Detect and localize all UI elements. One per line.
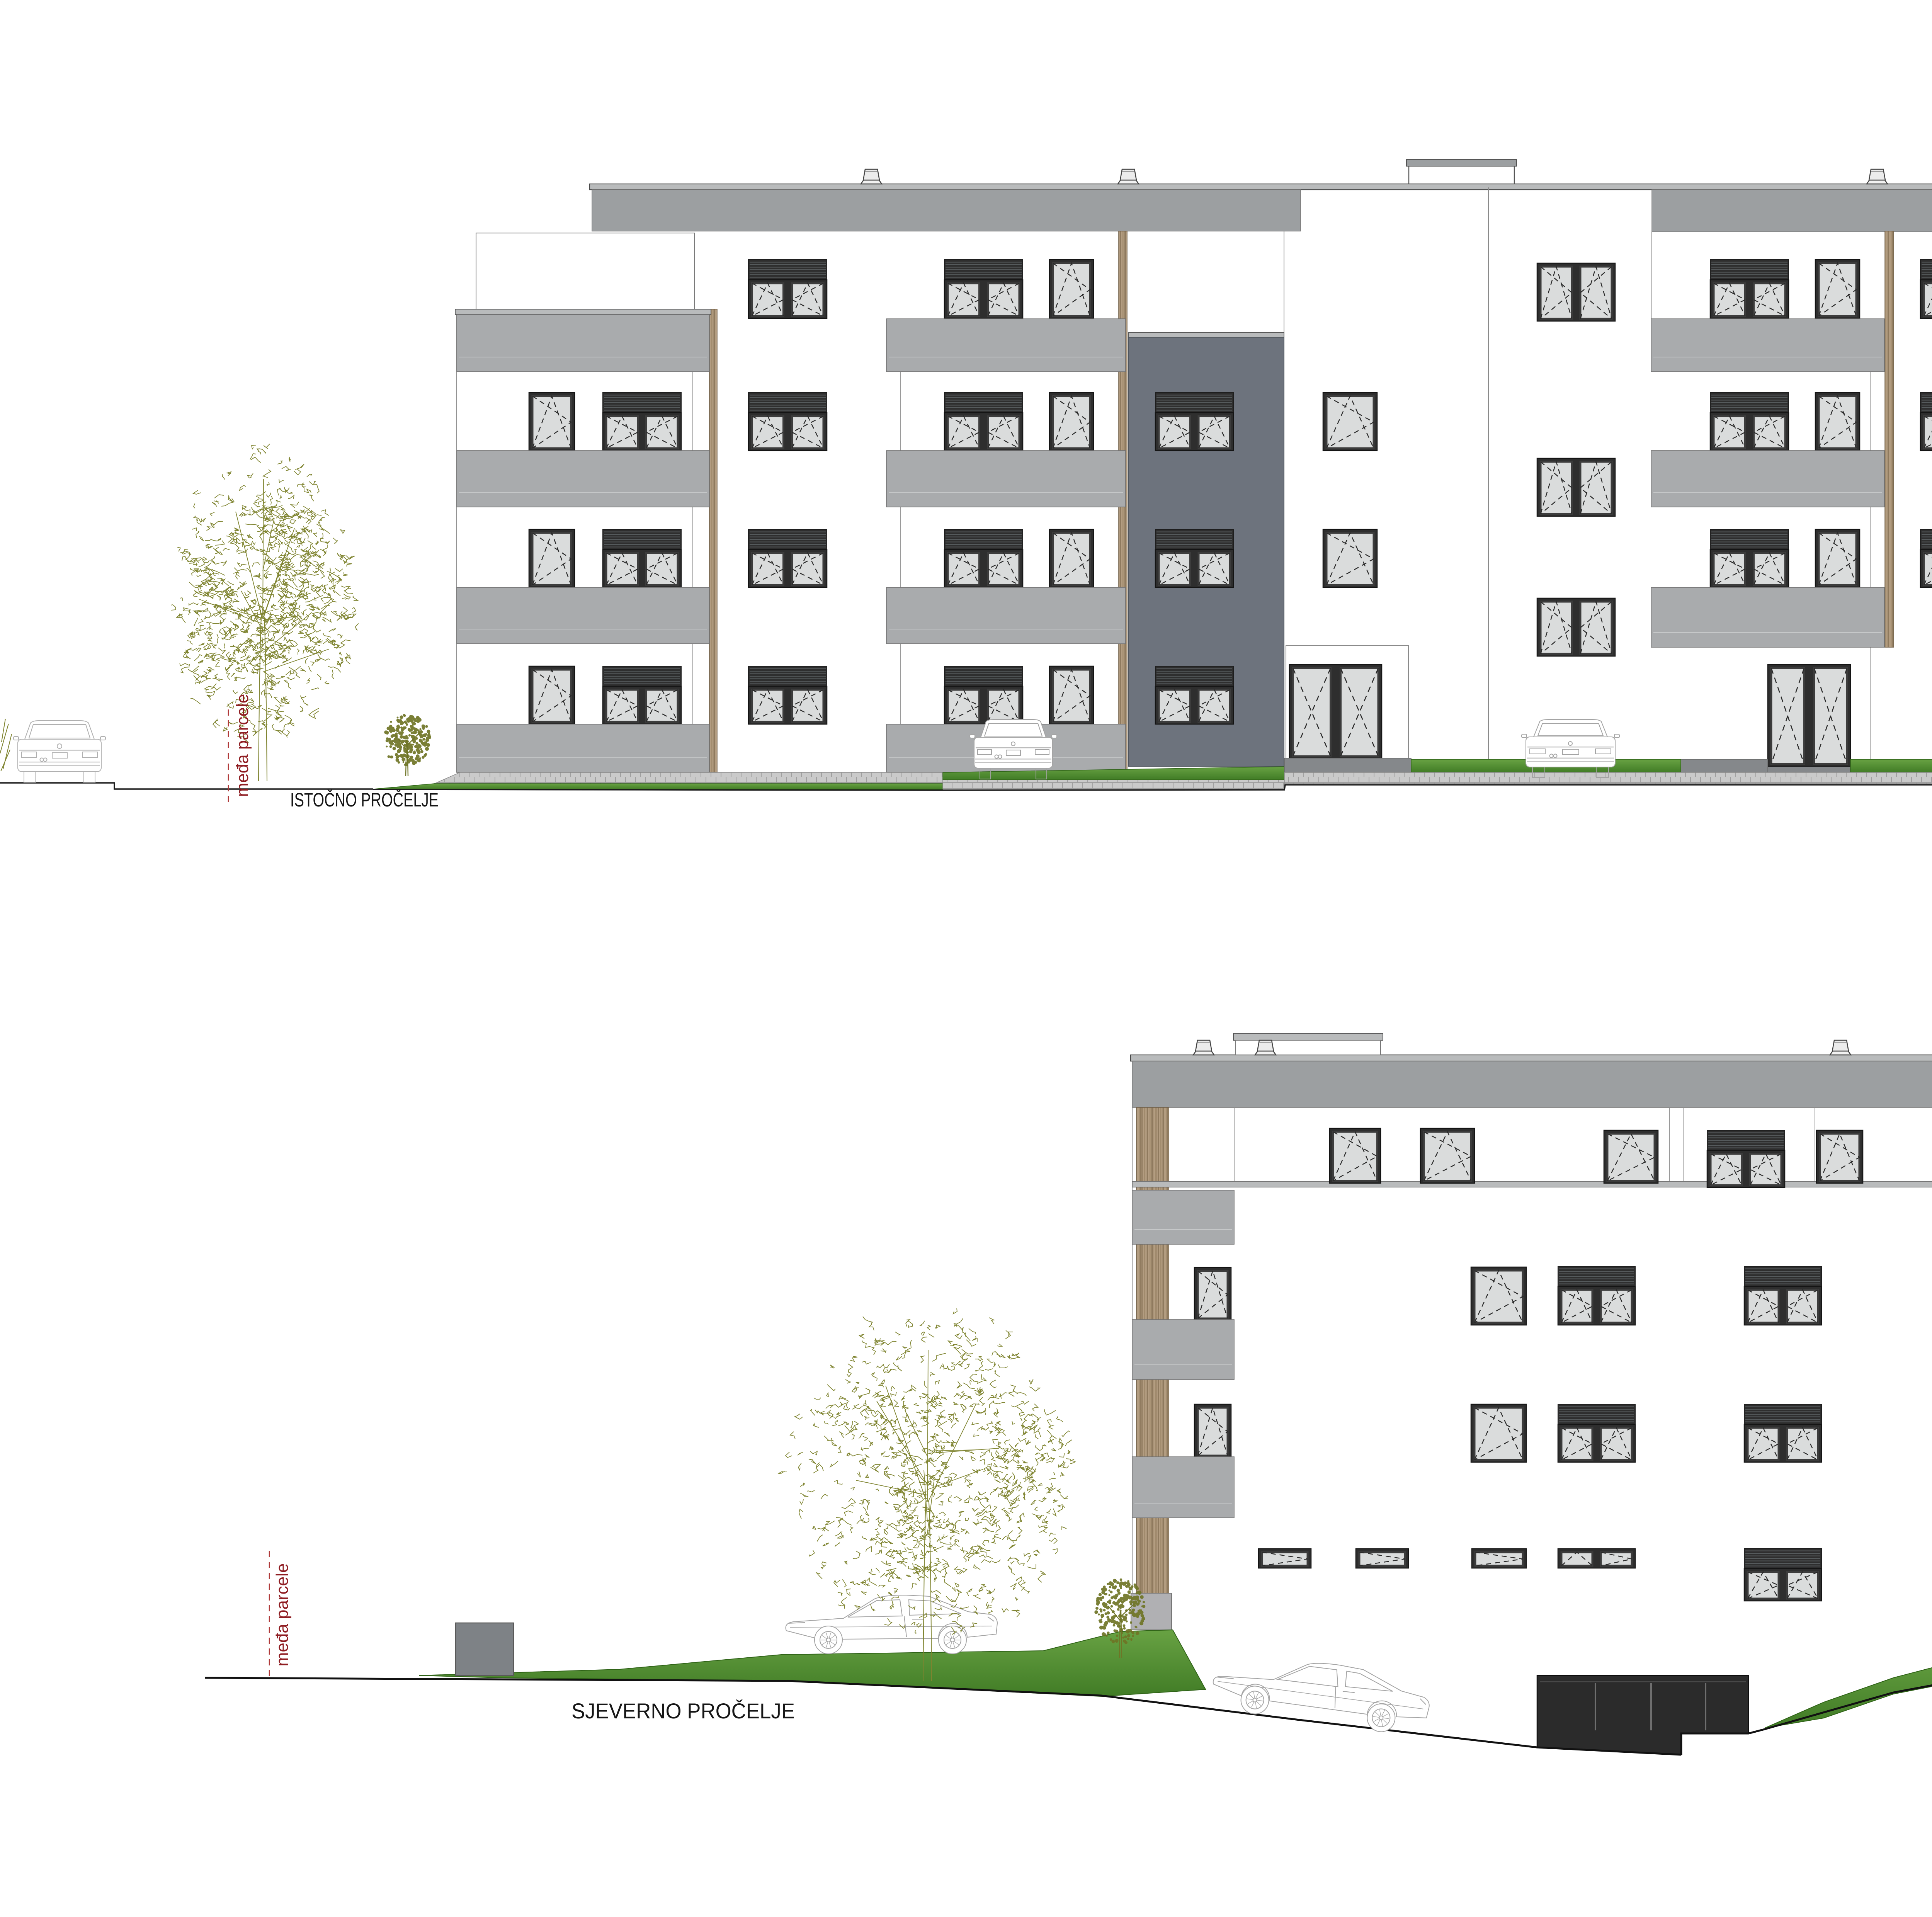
svg-text:SJEVERNO PROČELJE: SJEVERNO PROČELJE	[571, 1699, 795, 1723]
svg-text:ISTOČNO PROČELJE: ISTOČNO PROČELJE	[290, 789, 439, 811]
svg-text:međa parcele: međa parcele	[273, 1563, 292, 1667]
svg-text:međa parcele: međa parcele	[233, 694, 252, 797]
